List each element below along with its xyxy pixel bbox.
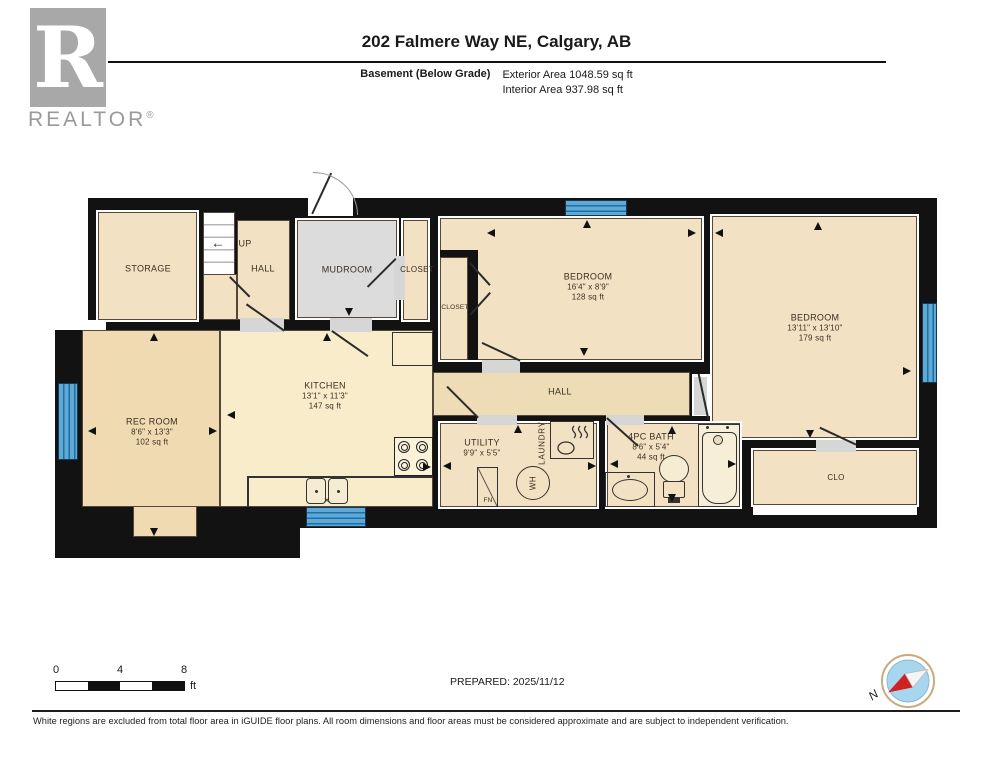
dim-arrow-icon — [814, 222, 822, 230]
door-sill-mudroom-kitchen — [330, 318, 372, 332]
room-label-bath: 4PC BATH 8'6" x 5'4" 44 sq ft — [628, 431, 674, 462]
scale-tick-0: 0 — [53, 664, 59, 676]
scale-tick-4: 4 — [117, 664, 123, 676]
dim-arrow-icon — [715, 229, 723, 237]
room-label-hall-upper: HALL — [251, 263, 275, 274]
door-sill-mudroom-closet — [394, 256, 405, 300]
room-label-bedroom-2: BEDROOM 13'11" x 13'10" 179 sq ft — [787, 312, 842, 343]
door-arc-mudroom-exterior — [313, 172, 358, 215]
dim-arrow-icon — [150, 528, 158, 536]
prepared-date: PREPARED: 2025/11/12 — [450, 676, 565, 688]
room-hall-upper-ext — [203, 274, 237, 320]
room-rec-notch — [133, 506, 197, 537]
page-title: 202 Falmere Way NE, Calgary, AB — [0, 32, 993, 52]
interior-area: Interior Area 937.98 sq ft — [502, 83, 632, 98]
stairs-arrow-icon: ← — [211, 234, 225, 252]
room-label-closet-mudroom: CLOSET — [400, 265, 434, 275]
dim-arrow-icon — [487, 229, 495, 237]
dim-arrow-icon — [150, 333, 158, 341]
dim-arrow-icon — [423, 463, 431, 471]
window-kitchen — [306, 507, 366, 527]
room-label-storage: STORAGE — [125, 263, 171, 274]
sink-basin-right-icon — [328, 478, 348, 504]
realtor-brand: REALTOR® — [28, 108, 157, 132]
area-summary: Exterior Area 1048.59 sq ft Interior Are… — [502, 68, 632, 98]
header-divider — [108, 61, 886, 63]
room-label-hall: HALL — [548, 386, 572, 397]
room-label-laundry: LAUNDRY — [538, 421, 547, 465]
dim-arrow-icon — [227, 411, 235, 419]
footer-divider — [32, 710, 960, 712]
dim-arrow-icon — [580, 348, 588, 356]
scale-unit: ft — [190, 680, 196, 692]
dim-arrow-icon — [903, 367, 911, 375]
dryer-icon — [550, 421, 594, 459]
floor-plan-page: R REALTOR® 202 Falmere Way NE, Calgary, … — [0, 0, 993, 768]
room-label-clo: CLO — [827, 473, 844, 483]
dim-arrow-icon — [209, 427, 217, 435]
exterior-area: Exterior Area 1048.59 sq ft — [502, 68, 632, 83]
vanity-icon — [605, 472, 655, 507]
dim-arrow-icon — [588, 462, 596, 470]
dim-arrow-icon — [345, 308, 353, 316]
room-label-closet-bedroom: CLOSET — [441, 304, 468, 312]
door-sill-utility — [477, 415, 517, 425]
furnace-label: FN — [483, 497, 492, 505]
counter-edge — [247, 476, 433, 478]
dim-arrow-icon — [688, 229, 696, 237]
excluded-strip-clo — [753, 505, 917, 515]
compass-icon — [878, 651, 938, 711]
dim-arrow-icon — [443, 462, 451, 470]
dim-arrow-icon — [806, 430, 814, 438]
sink-faucet-icon: ✕ — [323, 496, 330, 506]
scale-bar — [55, 681, 185, 691]
room-label-rec: REC ROOM 8'6" x 13'3" 102 sq ft — [126, 416, 178, 447]
dim-arrow-icon — [514, 425, 522, 433]
disclaimer-text: White regions are excluded from total fl… — [33, 716, 789, 726]
plan-subheader: Basement (Below Grade) Exterior Area 104… — [0, 68, 993, 98]
counter-edge-left — [247, 476, 249, 507]
room-label-bedroom-1: BEDROOM 16'4" x 8'9" 128 sq ft — [564, 271, 613, 302]
dim-arrow-icon — [668, 426, 676, 434]
dim-arrow-icon — [583, 220, 591, 228]
window-left — [58, 383, 78, 460]
window-right — [922, 303, 937, 383]
counter-appliance — [392, 332, 433, 366]
room-label-mudroom: MUDROOM — [322, 264, 373, 275]
dim-arrow-icon — [323, 333, 331, 341]
room-label-kitchen: KITCHEN 13'1" x 11'3" 147 sq ft — [302, 380, 348, 411]
room-label-utility: UTILITY 9'9" x 5'5" — [463, 437, 500, 458]
stairs-up-label: UP — [238, 238, 251, 249]
dim-arrow-icon — [728, 460, 736, 468]
window-top — [565, 200, 627, 216]
scale-tick-8: 8 — [181, 664, 187, 676]
dim-arrow-icon — [668, 494, 676, 502]
water-heater-label: WH — [529, 476, 538, 490]
dim-arrow-icon — [610, 460, 618, 468]
floor-label: Basement (Below Grade) — [360, 68, 490, 98]
dim-arrow-icon — [88, 427, 96, 435]
door-sill-bedroom-1 — [482, 360, 520, 373]
